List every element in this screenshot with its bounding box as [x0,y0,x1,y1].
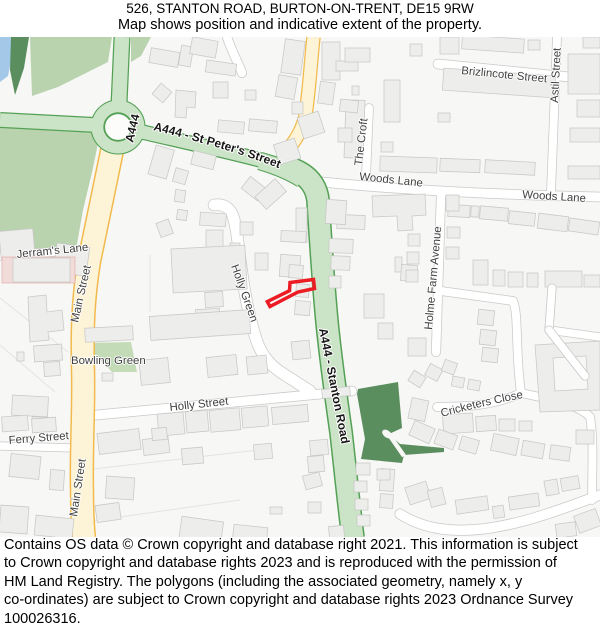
svg-text:Bowling Green: Bowling Green [71,355,146,367]
